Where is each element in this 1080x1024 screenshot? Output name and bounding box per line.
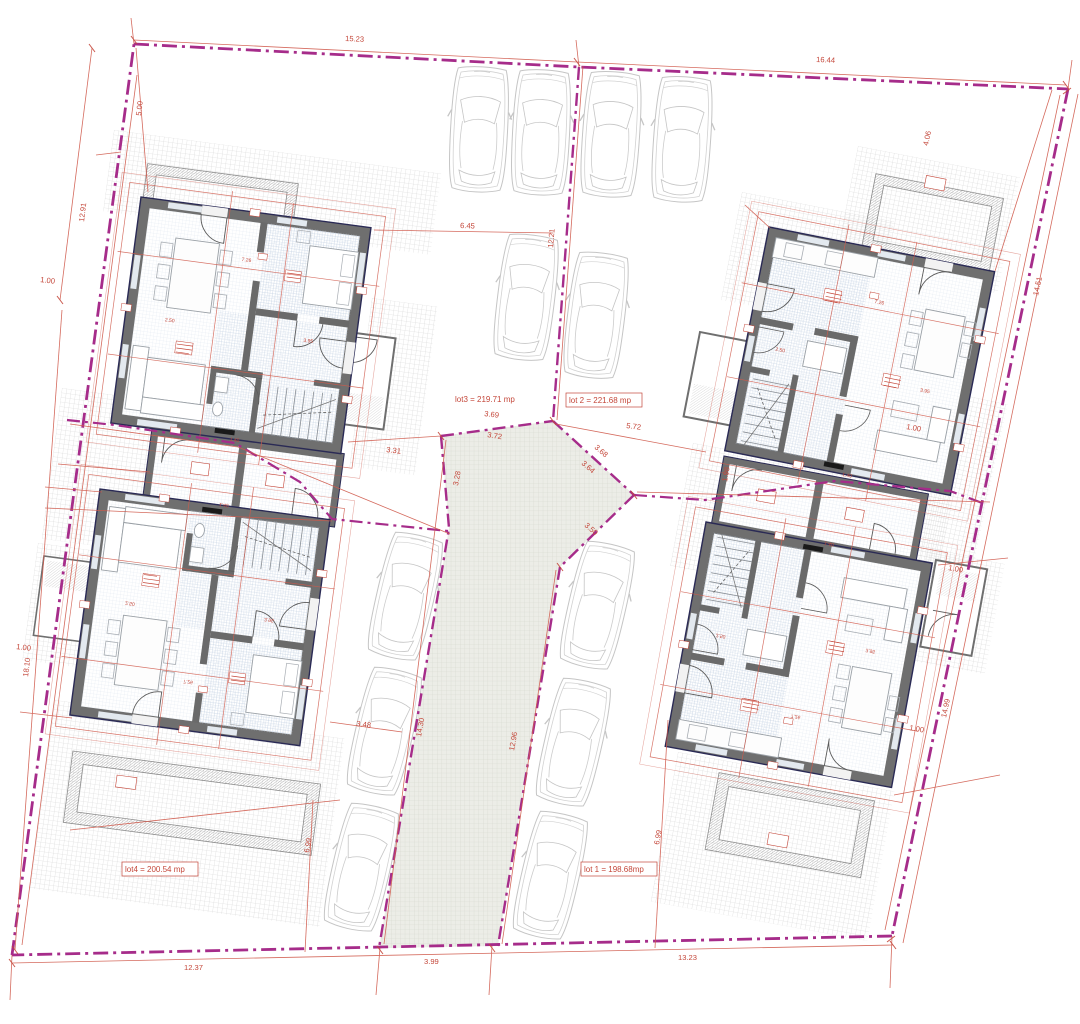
svg-text:1.00: 1.00 [16, 642, 32, 653]
svg-text:3.99: 3.99 [424, 957, 439, 966]
svg-text:15.23: 15.23 [345, 34, 364, 44]
svg-text:12.37: 12.37 [184, 963, 203, 972]
svg-text:5.00: 5.00 [134, 100, 145, 116]
svg-text:13.23: 13.23 [678, 953, 697, 962]
svg-text:5.72: 5.72 [626, 421, 642, 432]
svg-text:3.69: 3.69 [484, 409, 500, 420]
svg-text:lot 1 = 198.68mp: lot 1 = 198.68mp [584, 865, 644, 874]
svg-text:1.00: 1.00 [40, 275, 56, 286]
svg-text:3.48: 3.48 [356, 719, 372, 730]
svg-text:6.45: 6.45 [460, 221, 475, 231]
svg-text:16.44: 16.44 [816, 55, 835, 65]
svg-text:lot4 = 200.54 mp: lot4 = 200.54 mp [125, 865, 185, 874]
svg-text:lot 2 = 221.68 mp: lot 2 = 221.68 mp [569, 396, 632, 405]
svg-text:lot3 = 219.71 mp: lot3 = 219.71 mp [455, 395, 515, 404]
svg-text:12.21: 12.21 [546, 228, 557, 248]
svg-text:3.31: 3.31 [386, 445, 402, 456]
